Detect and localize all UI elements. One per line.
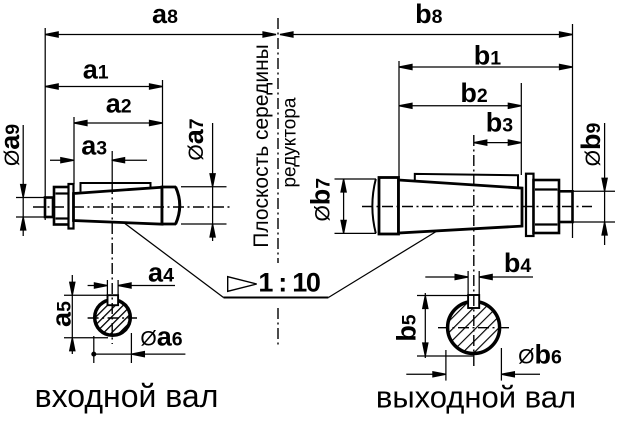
svg-text:выходной вал: выходной вал <box>376 380 576 415</box>
svg-text:1 : 10: 1 : 10 <box>258 267 320 297</box>
svg-text:входной вал: входной вал <box>35 378 219 414</box>
svg-text:редуктора: редуктора <box>280 97 301 187</box>
svg-text:Øa9: Øa9 <box>0 124 25 166</box>
svg-text:Плоскость середины: Плоскость середины <box>250 44 273 248</box>
